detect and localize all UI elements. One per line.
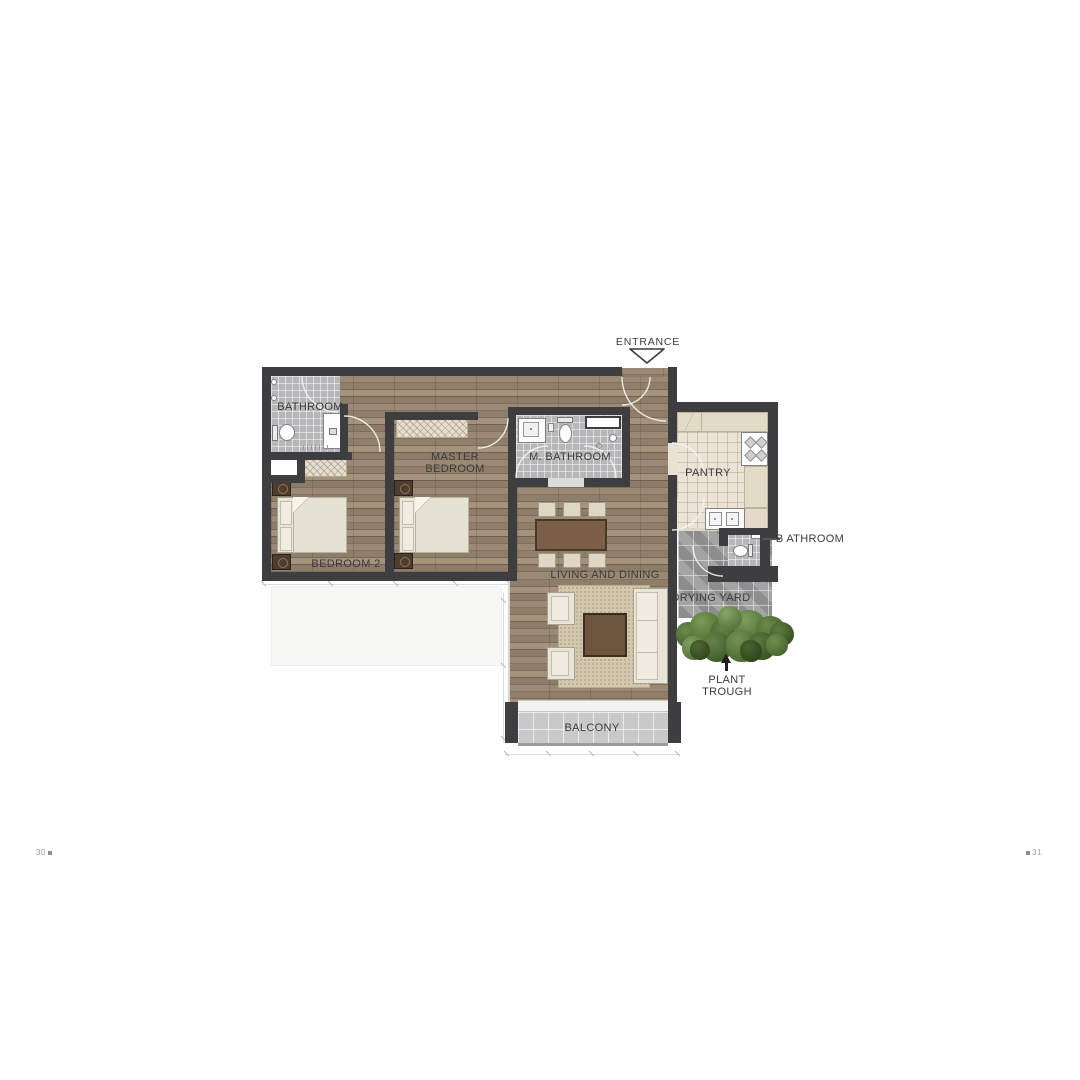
footer-marker xyxy=(48,851,52,855)
sofa-cushions xyxy=(636,592,658,680)
duct-shaft xyxy=(271,460,297,475)
wall xyxy=(385,412,478,420)
dining-chair xyxy=(563,502,581,517)
wardrobe xyxy=(396,418,468,438)
floor-plan-page: ENTRANCE BATHROOM MASTER BEDROOM M. BATH… xyxy=(0,0,1080,1080)
dining-chair xyxy=(563,553,581,568)
page-number-left: 30 xyxy=(36,848,54,857)
toilet-icon xyxy=(559,424,572,443)
bath-mat xyxy=(303,445,329,450)
toilet-tank xyxy=(557,417,573,423)
wall xyxy=(760,528,770,570)
room-label-pantry: PANTRY xyxy=(685,467,731,479)
room-label-m-bathroom: M. BATHROOM xyxy=(529,451,611,463)
window-edge-line xyxy=(508,581,510,702)
wall xyxy=(508,407,516,487)
blanket-fold xyxy=(293,497,309,513)
shower-control-icon xyxy=(271,395,277,401)
nightstand xyxy=(394,553,413,569)
balcony-sliding-door xyxy=(518,700,668,712)
cabinet-door-line xyxy=(677,412,701,432)
dining-chair xyxy=(538,502,556,517)
pillow xyxy=(280,501,292,525)
blanket-fold xyxy=(415,497,431,513)
wall xyxy=(768,402,778,538)
dining-chair xyxy=(588,553,606,568)
niche-shelf xyxy=(585,416,621,429)
wall xyxy=(708,566,778,582)
room-label-plant-trough: PLANT TROUGH xyxy=(702,674,752,698)
door-threshold xyxy=(548,478,584,487)
pantry-threshold xyxy=(668,443,678,475)
entrance-label: ENTRANCE xyxy=(616,336,680,348)
balcony-post xyxy=(505,702,518,743)
dining-chair xyxy=(538,553,556,568)
wall xyxy=(262,367,271,581)
toilet-icon xyxy=(733,545,748,557)
balcony-post xyxy=(668,702,681,743)
room-label-living-and-dining: LIVING AND DINING xyxy=(550,569,659,581)
wall xyxy=(271,452,352,460)
kitchen-counter xyxy=(744,466,768,508)
toilet-tank xyxy=(748,544,753,557)
paper-holder-icon xyxy=(548,423,554,432)
wall xyxy=(508,478,548,487)
plant-trough-plants xyxy=(674,606,792,664)
room-label-balcony: BALCONY xyxy=(564,722,619,734)
floor-drain-icon xyxy=(596,443,602,449)
wall xyxy=(385,412,394,581)
page-number-right: 31 xyxy=(1024,848,1042,857)
dining-chair xyxy=(588,502,606,517)
room-label-bathroom: BATHROOM xyxy=(277,401,343,413)
entrance-floor xyxy=(622,368,668,377)
pillow xyxy=(402,501,414,525)
balcony-edge xyxy=(518,743,668,746)
toilet-tank xyxy=(272,425,278,441)
wall xyxy=(584,478,630,487)
nightstand xyxy=(272,554,291,570)
room-label-bedroom-2: BEDROOM 2 xyxy=(311,558,380,570)
plant-trough-arrow-icon xyxy=(721,654,731,663)
wall xyxy=(508,407,630,415)
wall xyxy=(262,367,622,376)
dining-table xyxy=(535,519,607,551)
ghost-area xyxy=(271,586,502,666)
toilet-icon xyxy=(279,424,295,441)
room-label-drying-yard: DRYING YARD xyxy=(671,592,750,604)
wall xyxy=(668,402,778,412)
wall xyxy=(622,407,630,487)
shower-head-icon xyxy=(609,434,617,442)
room-label-b-athroom: B ATHROOM xyxy=(776,533,844,545)
coffee-table xyxy=(583,613,627,657)
dimension-line xyxy=(262,584,510,585)
wardrobe xyxy=(299,458,347,477)
stove-icon xyxy=(741,432,768,466)
nightstand xyxy=(394,480,413,496)
footer-marker xyxy=(1026,851,1030,855)
wall xyxy=(508,487,517,581)
pillow xyxy=(280,527,292,551)
pillow xyxy=(402,527,414,551)
room-label-master-bedroom: MASTER BEDROOM xyxy=(425,451,484,475)
shower-head-icon xyxy=(271,379,277,385)
wall xyxy=(262,475,305,483)
kitchen-counter xyxy=(744,508,768,530)
